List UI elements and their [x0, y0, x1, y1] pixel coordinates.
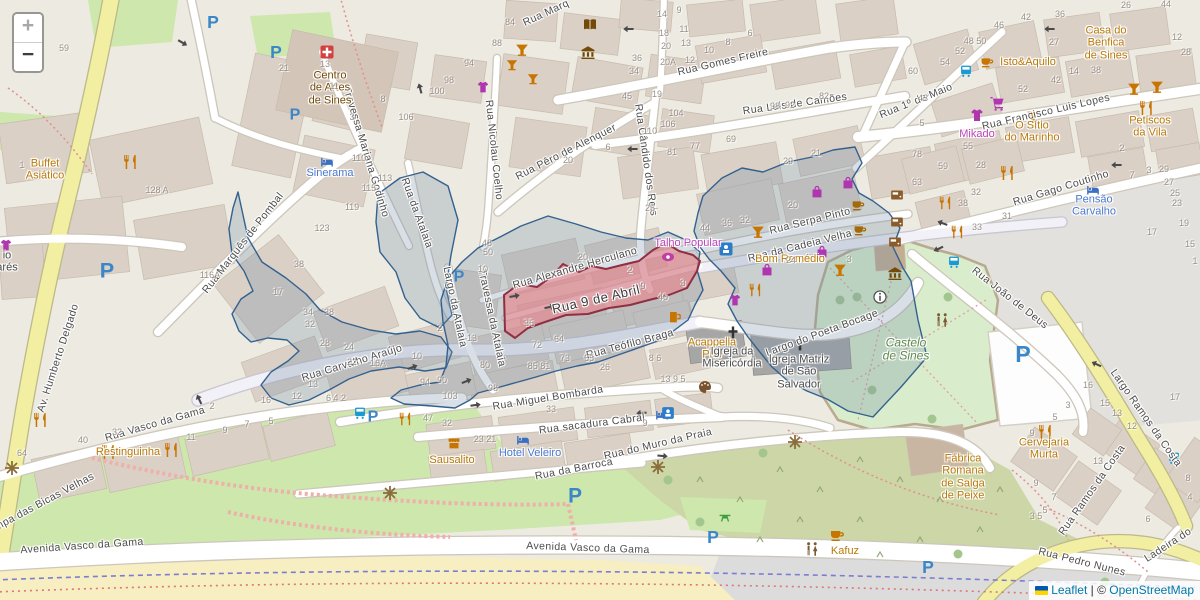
copyright-symbol: © [1097, 583, 1106, 597]
parking-icon: P [368, 409, 379, 426]
pharmacy-icon [321, 46, 334, 59]
map-canvas[interactable]: PPPPPPPPPP [0, 0, 1200, 600]
windmill-icon [383, 486, 397, 500]
parking-icon: P [207, 12, 219, 32]
community-icon [662, 407, 674, 419]
parking-icon: P [707, 527, 719, 547]
atm-icon [891, 191, 903, 200]
community-icon [720, 243, 733, 256]
windmill-icon [5, 461, 19, 475]
ukraine-flag-icon [1035, 586, 1048, 595]
leaflet-link[interactable]: Leaflet [1051, 583, 1087, 597]
parking-icon: P [568, 485, 582, 508]
attribution-separator: | [1091, 583, 1094, 597]
parking-icon: P [290, 107, 301, 124]
parking-icon: P [922, 557, 934, 577]
windmill-icon [651, 460, 665, 474]
marketplace-icon [449, 439, 460, 449]
parking-icon: P [454, 269, 465, 286]
info-icon [874, 291, 886, 303]
map-root: PPPPPPPPPP Travessa Mariana GodinhoRua M… [0, 0, 1200, 600]
windmill-icon [788, 435, 802, 449]
zoom-out-button[interactable]: − [14, 43, 42, 71]
zoom-control: + − [12, 12, 44, 73]
zoom-in-button[interactable]: + [14, 14, 42, 43]
butcher-icon [662, 253, 674, 261]
atm-icon [891, 218, 903, 227]
parking-icon: P [1015, 341, 1030, 367]
osm-link[interactable]: OpenStreetMap [1109, 583, 1194, 597]
parking-icon: P [270, 42, 282, 62]
parking-icon: P [100, 258, 114, 283]
book-icon [584, 19, 596, 29]
attribution-bar: Leaflet | © OpenStreetMap [1029, 581, 1200, 600]
atm-icon [889, 238, 901, 247]
